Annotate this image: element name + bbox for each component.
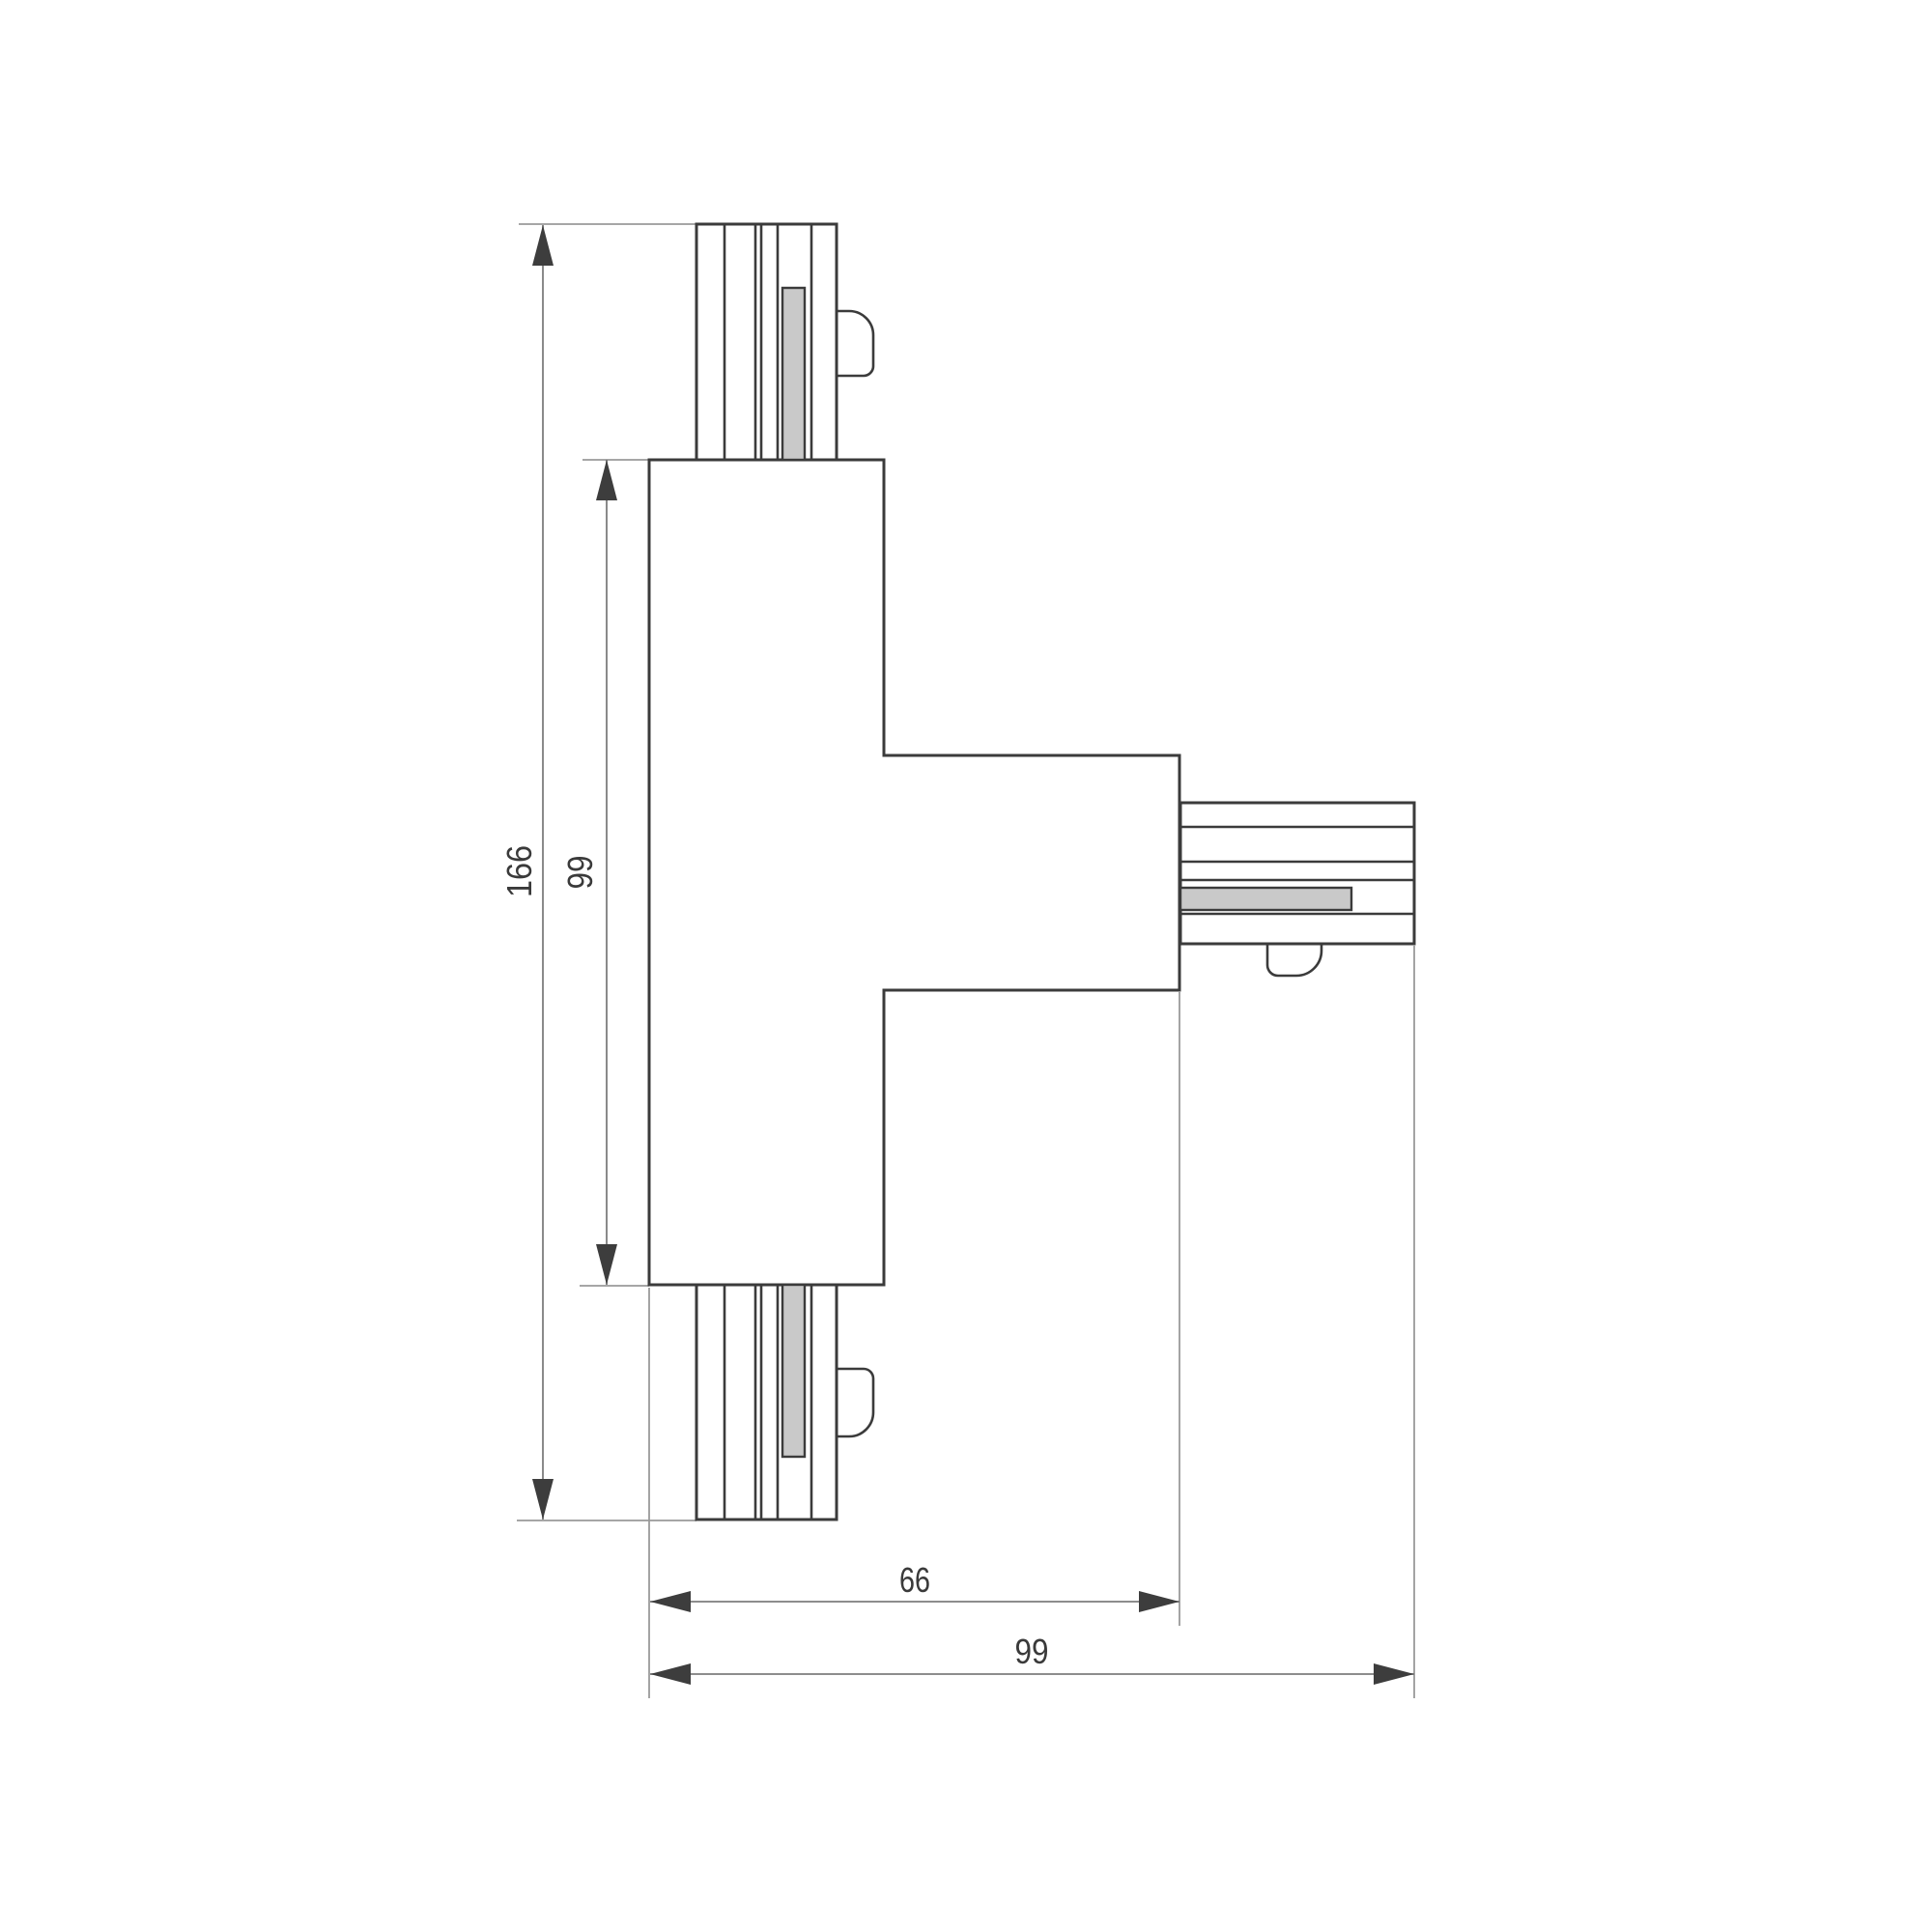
contact-strip-top: [782, 288, 805, 460]
dimension-label-overall-height: 166: [499, 845, 539, 897]
dimension-label-body-width: 66: [899, 1560, 930, 1600]
contact-strip-right: [1180, 888, 1351, 910]
technical-drawing-page: 166 99 66 99: [0, 0, 1932, 1932]
connector-right-body: [1180, 803, 1414, 944]
latch-tab-top: [837, 311, 873, 376]
t-connector-technical-drawing: 166 99 66 99: [0, 0, 1932, 1932]
connector-top-body: [696, 224, 837, 460]
connector-bottom-body: [696, 1285, 837, 1520]
dimension-label-body-height: 99: [560, 856, 600, 890]
dimension-label-overall-width: 99: [1015, 1632, 1049, 1671]
contact-strip-bottom: [782, 1285, 805, 1457]
latch-tab-bottom: [837, 1369, 873, 1436]
